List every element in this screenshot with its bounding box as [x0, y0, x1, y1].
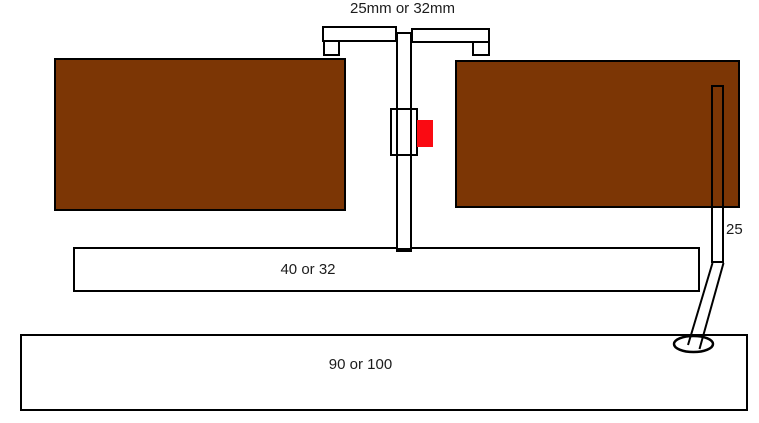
waste-size-label: 40 or 32: [258, 261, 358, 279]
soil-size-label: 90 or 100: [300, 356, 421, 374]
red-valve-handle: [417, 120, 433, 147]
pipe-coupling: [390, 108, 418, 156]
drain-hole-ellipse: [674, 336, 713, 352]
overflow-pipe: [711, 85, 724, 263]
overflow-size-label: 25: [726, 221, 743, 239]
branch-size-label: 25mm or 32mm: [300, 0, 505, 18]
right-panel: [455, 60, 740, 208]
angled-pipe-left-line: [688, 263, 713, 345]
plumbing-diagram: 25mm or 32mm 40 or 32 90 or 100 25: [0, 0, 759, 423]
angled-pipe-and-drain-hole: [650, 255, 759, 365]
angled-pipe-right-line: [700, 263, 724, 349]
waste-pipe-bar: [73, 247, 700, 292]
right-elbow-fitting: [472, 41, 490, 56]
left-panel: [54, 58, 346, 211]
left-elbow-fitting: [323, 40, 340, 56]
